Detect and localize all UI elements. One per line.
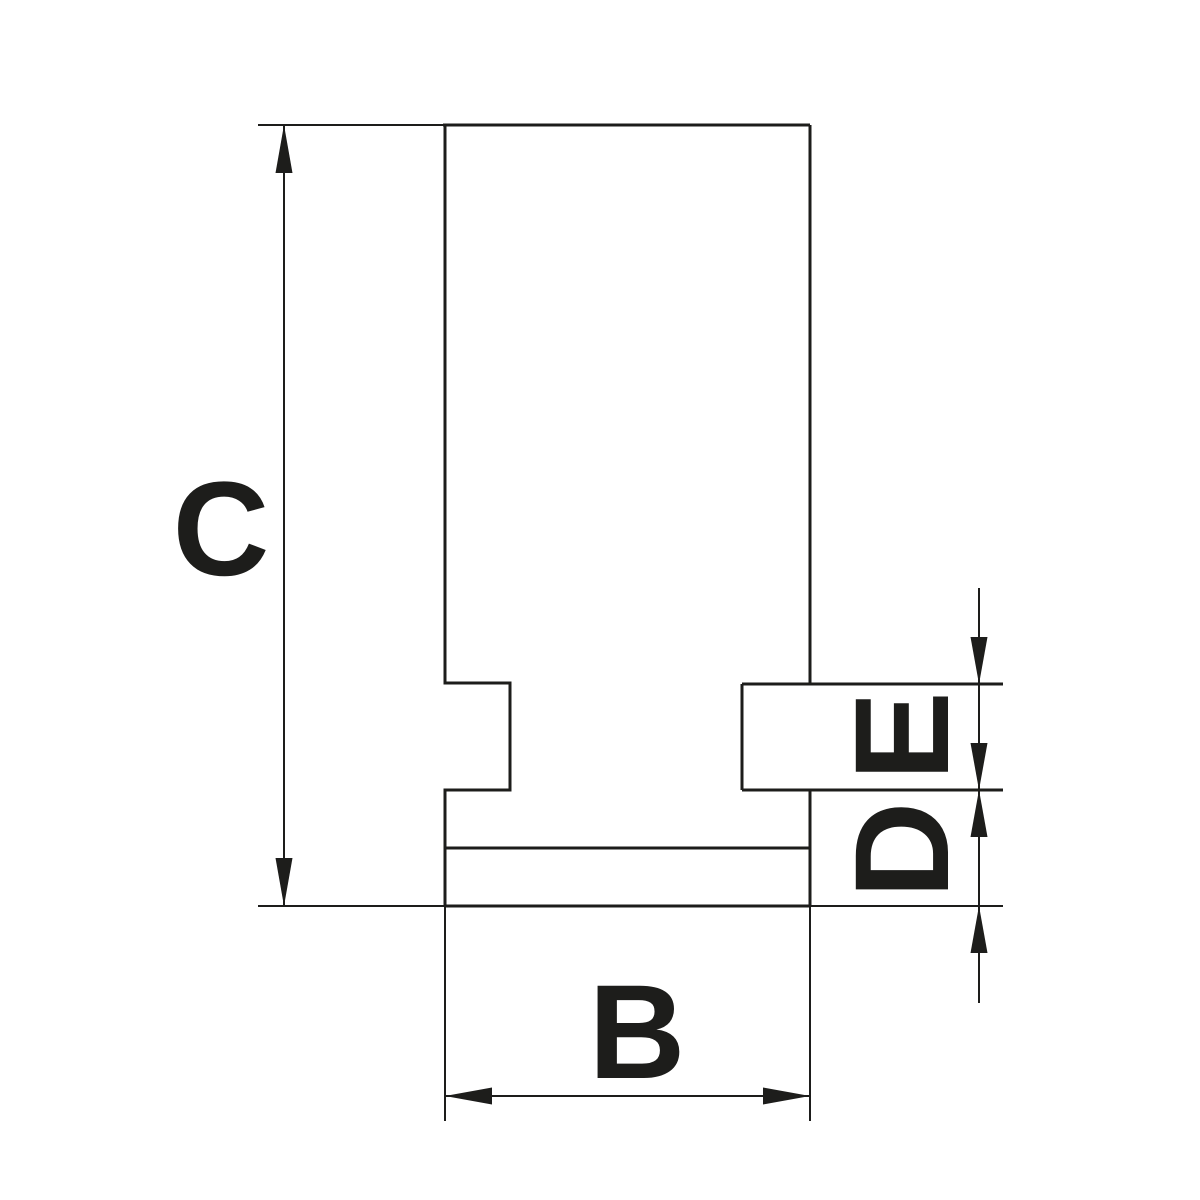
jaw-cross-section-drawing: C E D B <box>0 0 1200 1200</box>
arrow-down-icon <box>276 858 293 906</box>
arrow-down-icon <box>971 637 988 684</box>
arrow-left-icon <box>445 1088 492 1105</box>
part-outline <box>443 125 1003 906</box>
technical-drawing-canvas: C E D B <box>0 0 1200 1200</box>
dimension-height-C: C <box>173 125 445 906</box>
arrow-up-icon <box>276 125 293 173</box>
dim-label-E: E <box>828 691 977 780</box>
arrow-right-icon <box>763 1088 810 1105</box>
part-left-edge-with-groove <box>445 125 510 906</box>
dim-label-B: B <box>589 958 686 1107</box>
arrow-up-icon <box>971 906 988 953</box>
dimension-width-B: B <box>445 906 810 1121</box>
dim-label-D: D <box>828 802 977 899</box>
dimension-key-E-and-base-D: E D <box>810 588 1003 1003</box>
dim-label-C: C <box>173 455 270 604</box>
